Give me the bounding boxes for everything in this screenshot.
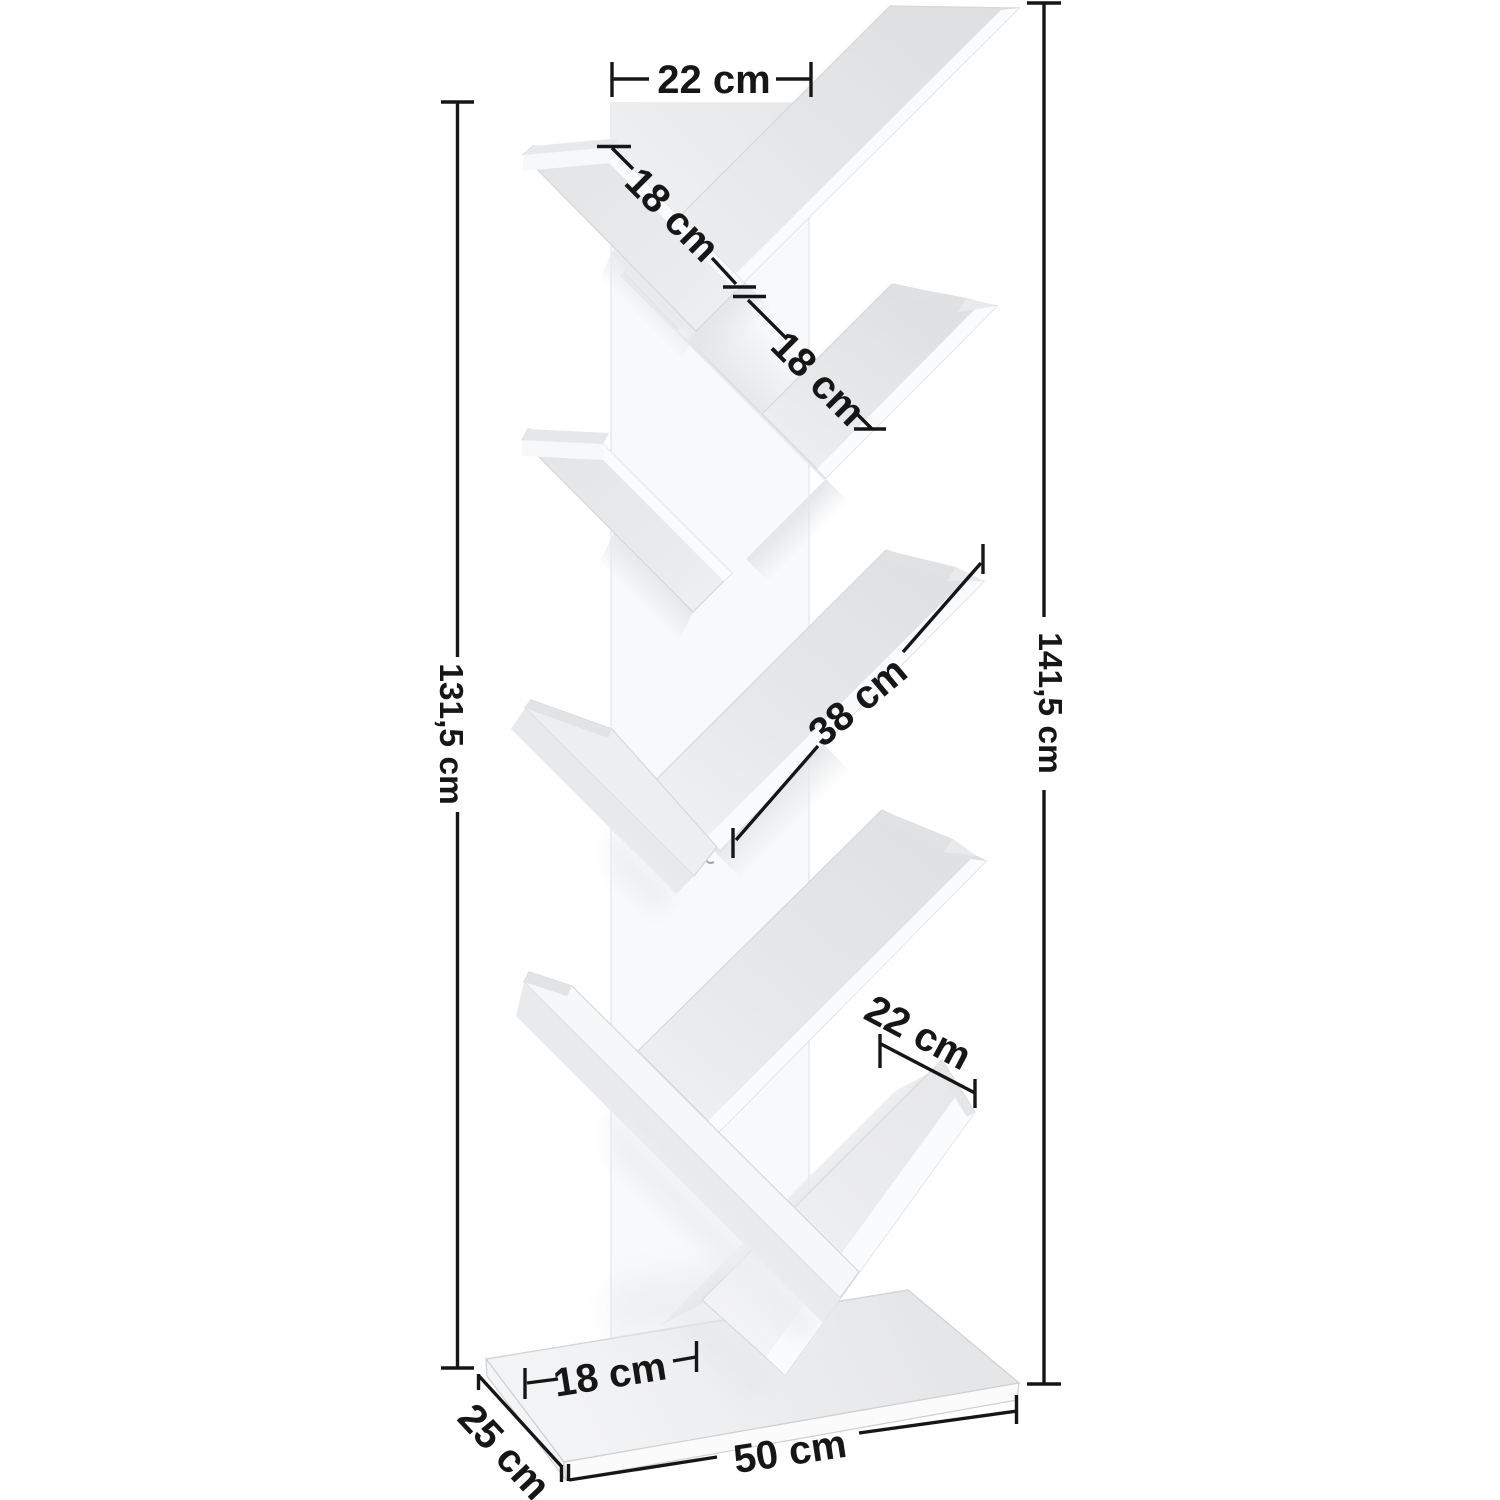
svg-text:141,5 cm: 141,5 cm — [1031, 632, 1068, 774]
svg-text:131,5 cm: 131,5 cm — [432, 663, 469, 805]
svg-text:22 cm: 22 cm — [657, 58, 770, 102]
